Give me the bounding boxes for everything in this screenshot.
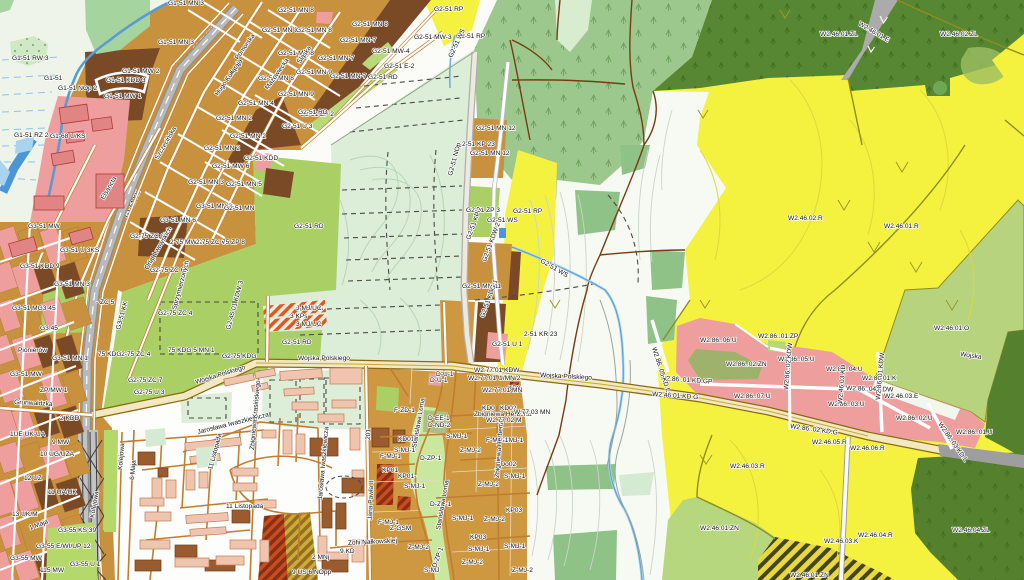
svg-text:G2-75 ZC 4: G2-75 ZC 4 xyxy=(158,310,193,317)
svg-text:D-U-1: D-U-1 xyxy=(436,371,454,378)
svg-text:G2-51.WS: G2-51.WS xyxy=(487,217,518,224)
svg-text:12 UZ: 12 UZ xyxy=(24,475,42,482)
svg-text:S-MJ-1: S-MJ-1 xyxy=(468,546,490,553)
svg-text:G1-51 NOp 2: G1-51 NOp 2 xyxy=(58,85,98,92)
svg-text:201: 201 xyxy=(365,428,372,440)
svg-text:W2.86..02.U: W2.86..02.U xyxy=(896,415,933,422)
svg-text:G3-55 U 1: G3-55 U 1 xyxy=(70,561,101,568)
svg-text:Z-GSM: Z-GSM xyxy=(390,525,411,532)
svg-text:W2.46.01.ZL: W2.46.01.ZL xyxy=(820,31,858,38)
svg-text:G2-51 MW-3: G2-51 MW-3 xyxy=(414,34,452,41)
svg-text:G2-51 MN 2: G2-51 MN 2 xyxy=(216,115,252,122)
svg-text:G2-51 MN 9: G2-51 MN 9 xyxy=(296,69,332,76)
svg-text:G1-68 U/KS: G1-68 U/KS xyxy=(50,133,86,140)
svg-text:G3-55 E/WI/UP 12: G3-55 E/WI/UP 12 xyxy=(36,543,91,550)
svg-text:G2-51 MN 8: G2-51 MN 8 xyxy=(296,27,332,34)
svg-text:W2.86..01.U: W2.86..01.U xyxy=(956,429,993,436)
svg-text:2-51 KR 23: 2-51 KR 23 xyxy=(524,331,558,338)
svg-text:G3-55 KS 39: G3-55 KS 39 xyxy=(58,527,96,534)
svg-text:3 KPs: 3 KPs xyxy=(290,313,308,320)
svg-text:G2-75 KDG: G2-75 KDG xyxy=(222,353,256,360)
svg-text:G2-51 MN 8: G2-51 MN 8 xyxy=(262,27,298,34)
svg-text:Wojska Polskiego: Wojska Polskiego xyxy=(298,355,350,362)
svg-text:S-MJ-1: S-MJ-1 xyxy=(404,483,426,490)
svg-text:75 KDG: 75 KDG xyxy=(98,351,121,358)
svg-text:ZP/MW 1: ZP/MW 1 xyxy=(40,387,68,394)
svg-text:G2-51 MN-7: G2-51 MN-7 xyxy=(318,55,355,62)
svg-text:G1-51 MW 2: G1-51 MW 2 xyxy=(122,68,160,75)
svg-text:Z-MJ-2: Z-MJ-2 xyxy=(408,544,429,551)
svg-text:2-51 KP 23: 2-51 KP 23 xyxy=(462,141,495,148)
svg-text:W2.46.04.R: W2.46.04.R xyxy=(858,532,893,539)
svg-text:G2-75 ZC 7: G2-75 ZC 7 xyxy=(128,377,163,384)
svg-text:G1-51 RZ 2: G1-51 RZ 2 xyxy=(14,132,49,139)
svg-text:W2.86..05.U: W2.86..05.U xyxy=(778,356,815,363)
svg-text:G2-51 MN: G2-51 MN xyxy=(224,205,255,212)
svg-text:G2-51 MN 2: G2-51 MN 2 xyxy=(230,133,266,140)
svg-text:75 KDG 5 MN 1: 75 KDG 5 MN 1 xyxy=(168,347,215,354)
svg-text:2 KDD: 2 KDD xyxy=(60,415,80,422)
svg-text:G2-51 MN-7: G2-51 MN-7 xyxy=(330,73,367,80)
svg-text:2 MNj: 2 MNj xyxy=(312,554,330,561)
svg-text:G3 45: G3 45 xyxy=(40,325,58,332)
svg-text:G2-51 MN-7: G2-51 MN-7 xyxy=(340,37,377,44)
svg-text:G3-51 KDD 9: G3-51 KDD 9 xyxy=(20,263,60,270)
svg-text:W2.77.01 MN: W2.77.01 MN xyxy=(482,387,523,394)
svg-text:- ZC 5: - ZC 5 xyxy=(96,299,115,306)
svg-text:G2-51 RD: G2-51 RD xyxy=(294,223,324,230)
svg-text:G3-51 MN 3: G3-51 MN 3 xyxy=(54,281,90,288)
svg-text:W2.77.01 U/MN/2: W2.77.01 U/MN/2 xyxy=(468,375,521,382)
svg-text:G1-51: G1-51 xyxy=(44,75,63,82)
svg-text:G1-51 MW 1: G1-51 MW 1 xyxy=(104,93,142,100)
svg-text:W2.86..07.U: W2.86..07.U xyxy=(734,393,771,400)
svg-text:G2-51 MW 6: G2-51 MW 6 xyxy=(212,163,250,170)
svg-text:D-ND-2: D-ND-2 xyxy=(428,422,451,429)
svg-text:G3-51 MN 6: G3-51 MN 6 xyxy=(160,217,196,224)
svg-text:Jana Pawła II: Jana Pawła II xyxy=(367,480,375,520)
svg-text:KP03: KP03 xyxy=(506,507,522,514)
svg-text:G2-51 MN 4: G2-51 MN 4 xyxy=(238,100,274,107)
svg-text:W2.77.02 M: W2.77.02 M xyxy=(486,417,522,424)
svg-text:S-MJ-1: S-MJ-1 xyxy=(504,543,526,550)
svg-text:KP01: KP01 xyxy=(382,467,398,474)
svg-text:G2-51 MN 3: G2-51 MN 3 xyxy=(188,179,224,186)
svg-text:G2-51 MN 8: G2-51 MN 8 xyxy=(278,7,314,14)
svg-text:G2-51 ZP 3: G2-51 ZP 3 xyxy=(466,207,500,214)
svg-text:G2-51 MN 5: G2-51 MN 5 xyxy=(226,181,262,188)
svg-text:W2.86..01.ZP: W2.86..01.ZP xyxy=(758,333,799,340)
svg-text:W2.86..06.U: W2.86..06.U xyxy=(700,337,737,344)
svg-text:W2.46.01.O: W2.46.01.O xyxy=(934,325,969,332)
svg-text:W2.46.03.E: W2.46.03.E xyxy=(884,393,919,400)
svg-text:11 UA/UK: 11 UA/UK xyxy=(48,489,77,496)
svg-text:W2.86..03.U: W2.86..03.U xyxy=(828,401,865,408)
svg-text:G1-51 RW 3: G1-51 RW 3 xyxy=(12,55,49,62)
svg-text:W2.77.01 KDW: W2.77.01 KDW xyxy=(474,367,520,374)
svg-text:G2-51 MN 9: G2-51 MN 9 xyxy=(278,91,314,98)
svg-text:10 UG/UZA: 10 UG/UZA xyxy=(40,451,75,458)
svg-text:KP01-: KP01- xyxy=(398,473,416,480)
svg-text:75 ZP 8: 75 ZP 8 xyxy=(222,239,245,246)
svg-text:11 Listopada: 11 Listopada xyxy=(226,503,264,510)
svg-text:G2-51 MN 12: G2-51 MN 12 xyxy=(476,125,516,132)
svg-text:Z-MJ-2: Z-MJ-2 xyxy=(512,567,533,574)
svg-text:W2.46.02.R: W2.46.02.R xyxy=(788,215,823,222)
svg-text:W2.46.01.ZN: W2.46.01.ZN xyxy=(700,525,739,532)
svg-text:G1-51 MN 3: G1-51 MN 3 xyxy=(168,0,204,7)
svg-text:9 KD: 9 KD xyxy=(340,548,355,555)
svg-text:Z-MJ-2: Z-MJ-2 xyxy=(460,447,481,454)
svg-text:D-ZP-1: D-ZP-1 xyxy=(420,455,442,462)
svg-text:G3-51 U 3KS: G3-51 U 3KS xyxy=(60,247,100,254)
svg-text:S-MJ-1: S-MJ-1 xyxy=(504,473,526,480)
svg-text:G2-51 MW-4: G2-51 MW-4 xyxy=(372,48,410,55)
svg-text:F-MJ-1: F-MJ-1 xyxy=(378,519,399,526)
svg-text:W2.46.06.R: W2.46.06.R xyxy=(850,445,885,452)
svg-text:W2.46.03.R: W2.46.03.R xyxy=(730,463,765,470)
svg-text:G1-51 KDD 3: G1-51 KDD 3 xyxy=(106,77,146,84)
svg-text:G2-51 RD: G2-51 RD xyxy=(368,74,398,81)
svg-text:G2-51 RP: G2-51 RP xyxy=(434,6,464,13)
svg-text:W.77.03 MN: W.77.03 MN xyxy=(514,409,551,416)
svg-text:G2-51 KDD: G2-51 KDD xyxy=(244,155,278,162)
svg-text:D-EE-1: D-EE-1 xyxy=(428,415,450,422)
svg-text:W2.46.03.K: W2.46.03.K xyxy=(824,538,859,545)
svg-text:G3-51 MW: G3-51 MW xyxy=(10,371,43,378)
svg-text:G1-51 MN 3: G1-51 MN 3 xyxy=(158,39,194,46)
svg-text:J-MJ/UC: J-MJ/UC xyxy=(296,305,322,312)
svg-text:G2-51 MN 12: G2-51 MN 12 xyxy=(470,150,510,157)
svg-text:115 MW: 115 MW xyxy=(40,567,65,574)
svg-text:G2-75 U 3: G2-75 U 3 xyxy=(134,389,165,396)
svg-text:G3-51 MW: G3-51 MW xyxy=(28,223,61,230)
svg-text:G2-51 E-2: G2-51 E-2 xyxy=(384,63,415,70)
svg-text:G2-51 RD: G2-51 RD xyxy=(282,339,312,346)
svg-text:W2.86..02.ZN: W2.86..02.ZN xyxy=(726,361,767,368)
svg-text:KP03: KP03 xyxy=(470,534,486,541)
svg-text:G3-51 MN 1: G3-51 MN 1 xyxy=(52,355,88,362)
svg-text:W2.46.01.R: W2.46.01.R xyxy=(884,223,919,230)
svg-text:W2.46.04.ZL: W2.46.04.ZL xyxy=(952,527,990,534)
svg-text:G2-51 U 1: G2-51 U 1 xyxy=(492,341,523,348)
svg-text:G2-51 MN 2: G2-51 MN 2 xyxy=(204,145,240,152)
svg-text:1UE UK-UA: 1UE UK-UA xyxy=(10,431,46,438)
svg-text:F-MJ-1: F-MJ-1 xyxy=(380,453,401,460)
svg-text:3 MJ/UC: 3 MJ/UC xyxy=(296,321,322,328)
svg-text:Z-MJ-2: Z-MJ-2 xyxy=(478,481,499,488)
svg-text:W2.46.01.ZN: W2.46.01.ZN xyxy=(790,572,829,579)
svg-text:G2-75 ZC 6: G2-75 ZC 6 xyxy=(150,267,185,274)
svg-text:F-ZD-1: F-ZD-1 xyxy=(394,407,415,414)
svg-text:Pionierów: Pionierów xyxy=(18,347,47,354)
svg-text:Z-MJ-2: Z-MJ-2 xyxy=(484,516,505,523)
svg-text:W2.46.02.ZL: W2.46.02.ZL xyxy=(940,31,978,38)
svg-text:D-U-1: D-U-1 xyxy=(430,377,448,384)
svg-text:9 MW: 9 MW xyxy=(52,439,70,446)
svg-text:G3-55 MW: G3-55 MW xyxy=(10,555,43,562)
svg-text:W2.46.05.R: W2.46.05.R xyxy=(812,439,847,446)
svg-text:13 UK/M: 13 UK/M xyxy=(12,511,38,518)
svg-text:9 US 6 NOpp: 9 US 6 NOpp xyxy=(292,569,332,576)
svg-text:S-MJ-1: S-MJ-1 xyxy=(452,515,474,522)
svg-text:G2-51 RD: G2-51 RD xyxy=(298,109,328,116)
svg-text:G2-51 U 3: G2-51 U 3 xyxy=(282,123,313,130)
svg-text:G2-51 MN 8: G2-51 MN 8 xyxy=(352,21,388,28)
svg-text:G2-51 RP: G2-51 RP xyxy=(513,208,543,215)
svg-text:G3-51 MG3 45: G3-51 MG3 45 xyxy=(12,305,56,312)
svg-text:S-MJ-1: S-MJ-1 xyxy=(446,433,468,440)
svg-text:Z-MJ-2: Z-MJ-2 xyxy=(462,559,483,566)
